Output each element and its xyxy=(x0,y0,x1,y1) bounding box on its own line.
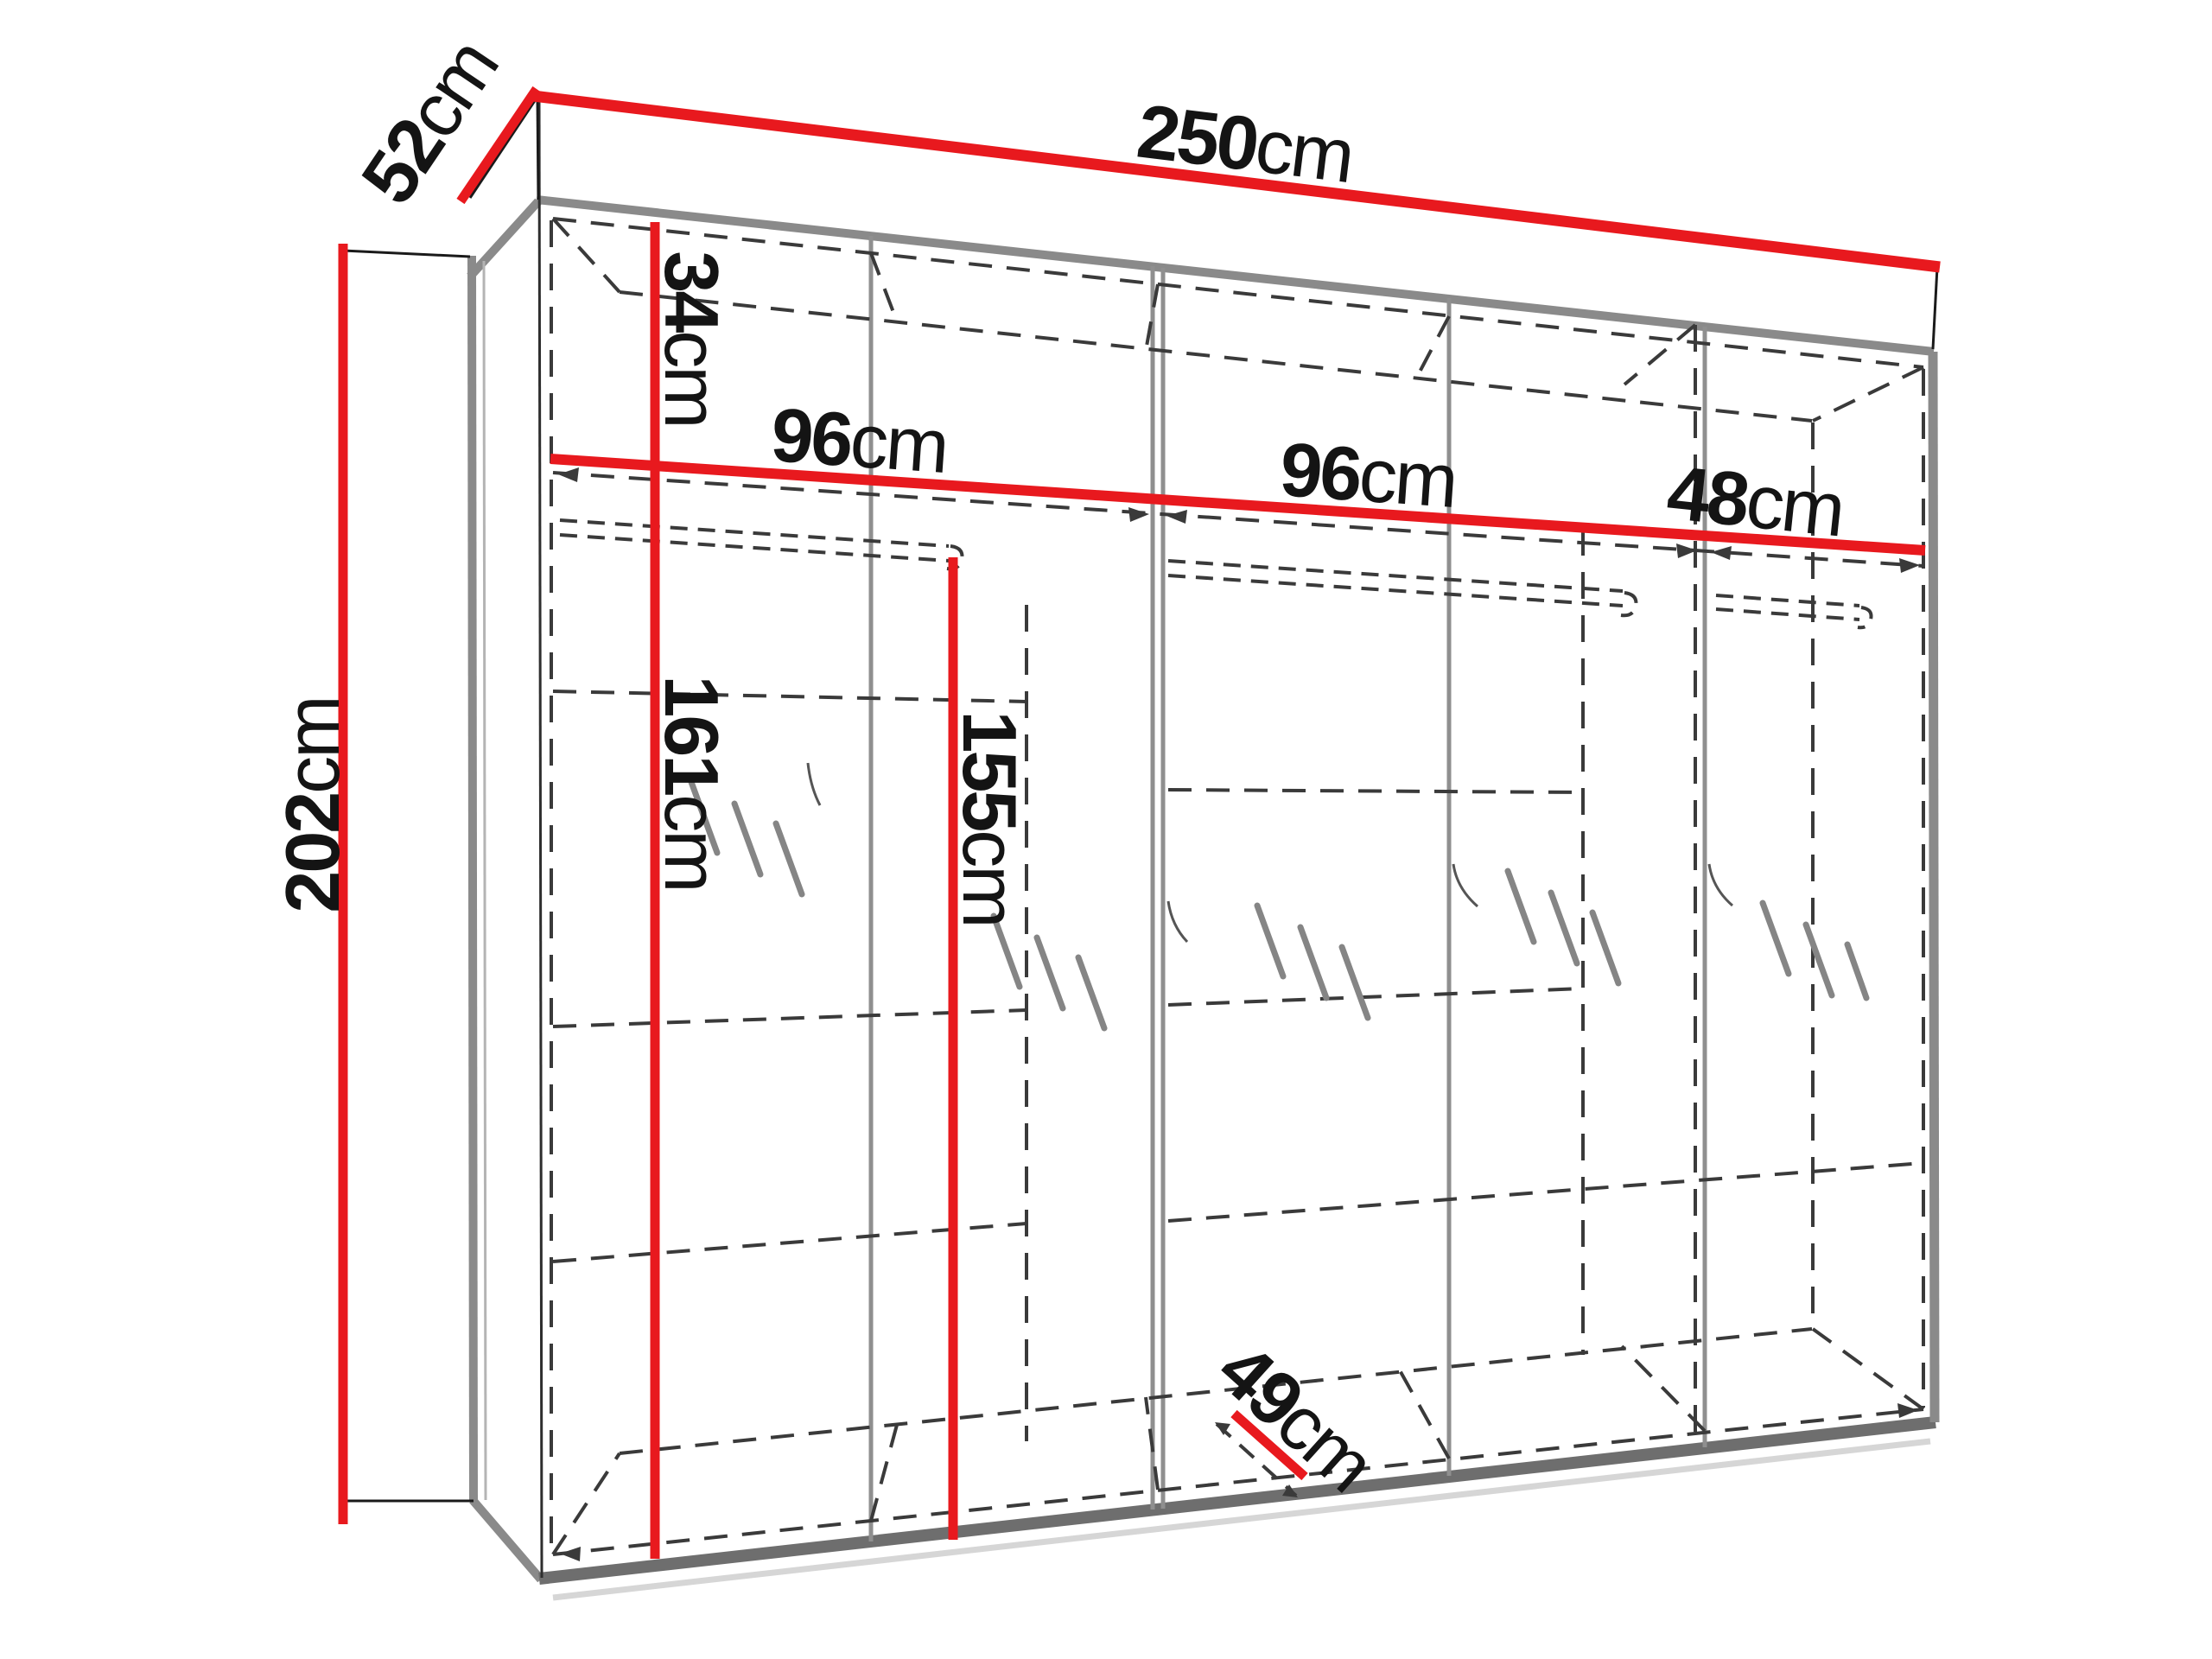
arrowhead xyxy=(1166,510,1187,524)
mirror-slash xyxy=(734,804,760,874)
mirror-slash xyxy=(1037,938,1063,1008)
left-bottom-corner-edge xyxy=(473,1500,541,1580)
shelf-hidden-line xyxy=(1168,988,1583,1005)
mirror-corner-curve xyxy=(1453,864,1478,906)
mirror-slash xyxy=(1078,957,1104,1028)
front-left-edge xyxy=(539,100,542,1578)
depth-line xyxy=(553,219,620,292)
arrowhead xyxy=(560,1547,581,1561)
interior-depth-label: 49cm xyxy=(1202,1326,1389,1508)
bottom-shadow-line xyxy=(553,1441,1930,1598)
width-tick-right xyxy=(1933,267,1937,349)
top-front-edge xyxy=(537,200,1934,352)
arrowhead xyxy=(1899,558,1920,573)
left-outer-edge xyxy=(472,256,474,1502)
rail-line xyxy=(1716,595,1859,606)
mirror-slash xyxy=(1342,947,1368,1018)
depth-line xyxy=(553,1453,620,1554)
top-compartment-height-label: 34cm xyxy=(649,251,734,426)
dimension-ticks xyxy=(343,251,1937,1561)
depth-label: 52cm xyxy=(345,25,514,219)
wardrobe-dimension-diagram: 250cm 52cm 202cm 34cm 96cm 96cm 48cm 161… xyxy=(0,0,2212,1659)
rail-line xyxy=(1168,561,1623,591)
top-left-bevel-edge xyxy=(470,201,538,276)
mirror-slash xyxy=(1257,906,1283,976)
mirror-corner-curve xyxy=(808,763,820,805)
mirror-slash xyxy=(1847,944,1866,998)
hanging-height-label: 155cm xyxy=(947,710,1033,925)
shelf-hidden-line xyxy=(1168,1163,1923,1221)
rail-hook xyxy=(1858,607,1872,627)
left-outer-inner-line xyxy=(484,261,486,1500)
rail-line xyxy=(1716,609,1859,620)
mirror-slash xyxy=(1551,893,1577,963)
width-label: 250cm xyxy=(1133,87,1357,199)
height-tick-top xyxy=(343,251,470,257)
depth-line xyxy=(1813,367,1923,421)
top-face-corner-edge xyxy=(537,97,538,200)
rail-line xyxy=(560,535,949,561)
depth-line xyxy=(1813,1329,1923,1409)
arrowhead xyxy=(1897,1403,1918,1418)
mirror-corner-curve xyxy=(1168,901,1187,942)
mirror-slash xyxy=(1763,903,1789,974)
mirror-slash xyxy=(1592,912,1618,983)
depth-line xyxy=(1624,325,1695,385)
rail-line xyxy=(1168,575,1623,606)
dimension-labels: 250cm 52cm 202cm 34cm 96cm 96cm 48cm 161… xyxy=(270,25,1847,1507)
section-2-width-label: 96cm xyxy=(1277,426,1459,524)
mirror-marks xyxy=(691,763,1866,1028)
shelf-hidden-line xyxy=(1168,790,1583,792)
mirror-slash xyxy=(994,916,1020,987)
mirror-slash xyxy=(776,823,802,894)
depth-line xyxy=(1400,1370,1449,1459)
arrowhead xyxy=(1128,507,1149,522)
arrowhead xyxy=(1711,546,1732,560)
depth-line xyxy=(871,253,897,321)
section-3-width-label: 48cm xyxy=(1663,449,1847,553)
mirror-slash xyxy=(1300,927,1326,998)
interior-height-label: 161cm xyxy=(649,675,734,890)
depth-line xyxy=(1417,316,1449,377)
mirror-corner-curve xyxy=(1709,864,1732,906)
mirror-slash xyxy=(1806,925,1832,995)
arrowhead xyxy=(558,467,579,482)
height-label: 202cm xyxy=(270,697,355,912)
diagram-canvas: 250cm 52cm 202cm 34cm 96cm 96cm 48cm 161… xyxy=(0,0,2212,1659)
rail-hook xyxy=(1621,593,1636,615)
right-front-edge xyxy=(1933,352,1935,1422)
bottom-front-edge xyxy=(539,1422,1935,1579)
section-1-width-label: 96cm xyxy=(768,391,950,489)
depth-line xyxy=(871,1425,897,1521)
mirror-slash xyxy=(1508,871,1534,942)
depth-line xyxy=(1622,1346,1705,1431)
rail-line xyxy=(560,520,949,546)
floor-front-line xyxy=(553,1409,1923,1554)
dimension-lines xyxy=(343,89,1940,1559)
